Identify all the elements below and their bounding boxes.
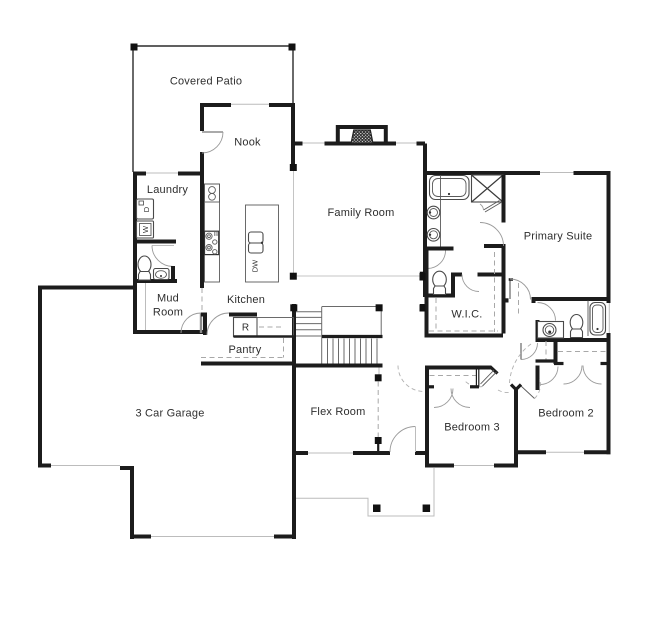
svg-text:Bedroom 3: Bedroom 3: [444, 422, 500, 434]
svg-text:Mud: Mud: [157, 293, 179, 305]
svg-text:Family Room: Family Room: [328, 207, 395, 219]
svg-text:Flex Room: Flex Room: [311, 406, 366, 418]
svg-text:Covered Patio: Covered Patio: [170, 76, 242, 88]
svg-text:W.I.C.: W.I.C.: [451, 309, 482, 321]
svg-text:Room: Room: [153, 307, 183, 319]
svg-text:Nook: Nook: [234, 137, 261, 149]
svg-text:R: R: [242, 323, 249, 334]
svg-text:Kitchen: Kitchen: [227, 294, 265, 306]
svg-text:W: W: [141, 225, 150, 233]
svg-text:D: D: [142, 206, 151, 212]
svg-text:DW: DW: [251, 259, 260, 272]
svg-text:Primary Suite: Primary Suite: [524, 231, 593, 243]
svg-text:3 Car Garage: 3 Car Garage: [135, 408, 204, 420]
svg-text:Laundry: Laundry: [147, 184, 188, 196]
svg-text:Bedroom 2: Bedroom 2: [538, 408, 594, 420]
svg-text:Pantry: Pantry: [229, 344, 262, 356]
